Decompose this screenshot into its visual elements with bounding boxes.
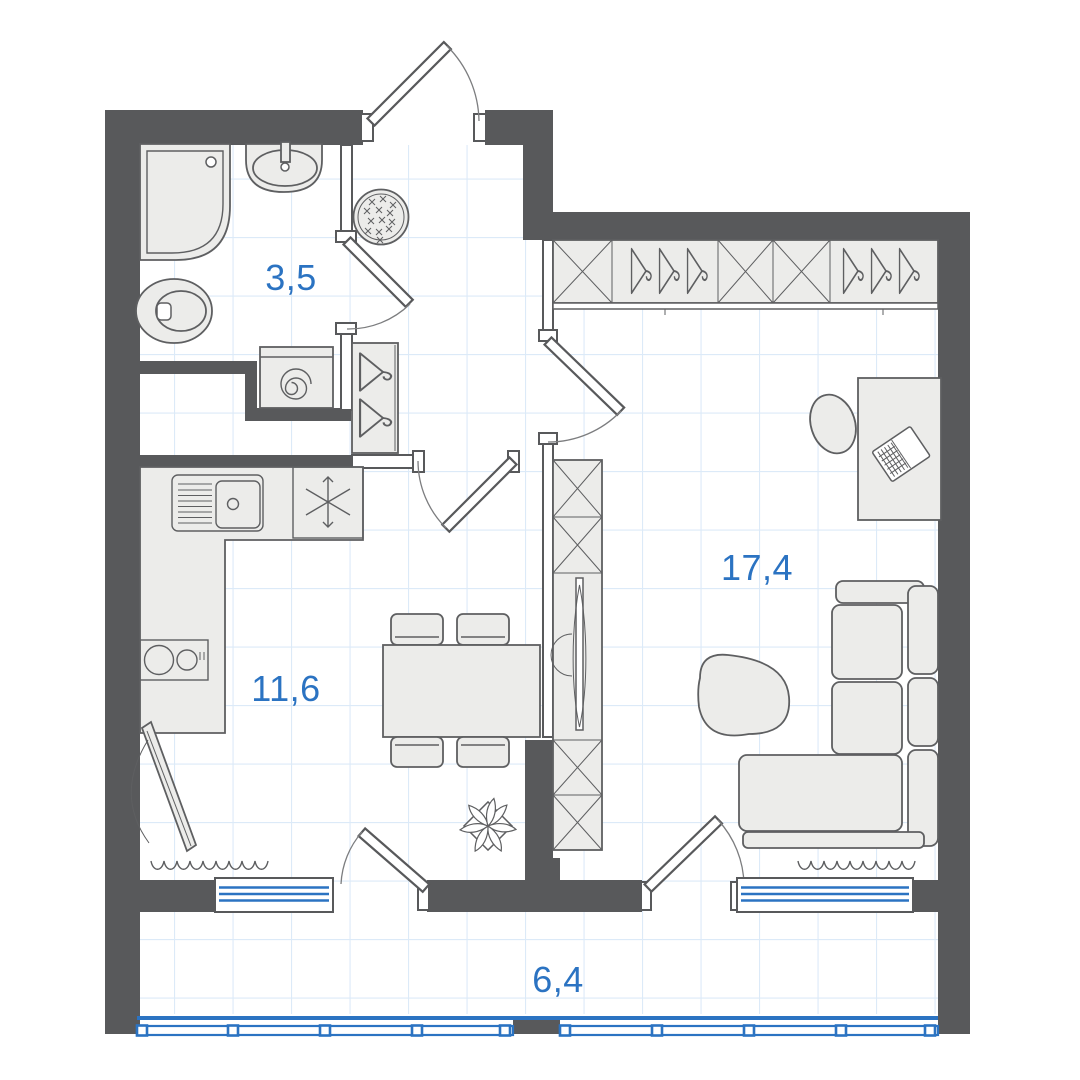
- partition-bathroom-lower: [341, 334, 352, 410]
- sofa-back-cushion: [908, 678, 938, 746]
- dining-table: [383, 645, 540, 737]
- wall-left: [105, 110, 140, 1034]
- floor-plan: 3,5 11,6 17,4 6,4: [0, 0, 1080, 1080]
- sofa-seat-cushion: [832, 682, 902, 754]
- wall-kitchen-north: [140, 455, 352, 468]
- balcony-pillar: [513, 1018, 560, 1034]
- room-area-label-bathroom: 3,5: [265, 257, 317, 298]
- wall-bottom-left: [137, 880, 215, 912]
- chair: [391, 614, 443, 645]
- wall-top-mid: [485, 110, 553, 145]
- kitchen-window: [215, 878, 333, 912]
- door-swing-arc: [447, 46, 479, 121]
- floor-plan-canvas: 3,5 11,6 17,4 6,4: [0, 0, 1080, 1080]
- entrance-door: [361, 42, 486, 141]
- wardrobe-rail: [553, 303, 938, 309]
- partition-hall-living-upper: [543, 240, 553, 332]
- sofa-seat-cushion: [832, 605, 902, 679]
- chair: [457, 737, 509, 767]
- room-area-label-kitchen: 11,6: [251, 668, 320, 709]
- partition-bathroom-upper: [341, 145, 352, 233]
- partition-hall-kitchen: [352, 455, 414, 468]
- living-window: [737, 878, 913, 912]
- sofa-chaise: [739, 755, 902, 831]
- wardrobe: [553, 240, 938, 315]
- room-area-label-balcony: 6,4: [532, 959, 584, 1000]
- wall-niche-south: [245, 408, 351, 421]
- wall-bottom-mid: [427, 880, 642, 912]
- sofa-armrest: [743, 832, 924, 848]
- tap-icon: [281, 142, 290, 162]
- chair: [391, 737, 443, 767]
- sofa-back-cushion: [908, 586, 938, 674]
- chair: [457, 614, 509, 645]
- wall-top-left: [105, 110, 363, 145]
- wall-pillar: [525, 858, 560, 882]
- room-area-label-living: 17,4: [721, 547, 793, 588]
- wall-right: [938, 212, 970, 1034]
- shower: [140, 144, 230, 260]
- toilet: [136, 279, 212, 343]
- door-leaf: [367, 42, 450, 125]
- glazing-top-line: [137, 1016, 938, 1020]
- partition-hall-living-lower: [543, 444, 553, 737]
- shower-drain: [206, 157, 216, 167]
- wall-bottom-right: [913, 880, 940, 912]
- ottoman: [354, 190, 409, 245]
- wall-top-living: [523, 212, 970, 240]
- coat-rack: [352, 343, 398, 453]
- washing-machine: [260, 347, 333, 408]
- door-frame: [474, 114, 486, 141]
- wall-bathroom-south: [140, 361, 257, 374]
- washbasin: [246, 142, 322, 192]
- tv-stand: [551, 460, 602, 850]
